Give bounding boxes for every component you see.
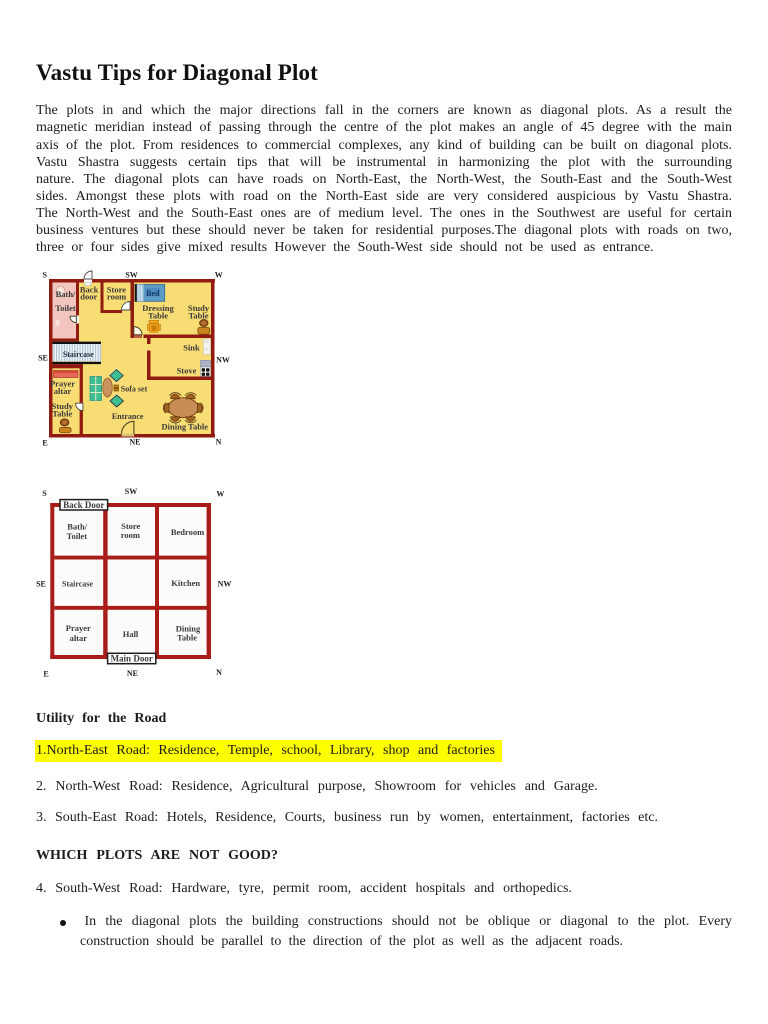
svg-text:Bath/: Bath/ <box>56 289 76 299</box>
svg-text:NE: NE <box>127 669 138 678</box>
svg-text:N: N <box>216 668 222 677</box>
svg-text:altar: altar <box>54 386 72 396</box>
svg-text:door: door <box>80 291 97 301</box>
svg-text:N: N <box>216 437 222 446</box>
svg-text:Bath/: Bath/ <box>67 522 87 532</box>
svg-text:Prayer: Prayer <box>66 623 91 633</box>
svg-text:W: W <box>215 271 223 280</box>
svg-text:S: S <box>42 489 47 498</box>
svg-text:SE: SE <box>38 353 48 362</box>
svg-text:E: E <box>42 438 47 447</box>
svg-text:Bed: Bed <box>146 289 160 298</box>
svg-text:Staircase: Staircase <box>63 350 94 359</box>
svg-text:Stove: Stove <box>177 366 197 376</box>
svg-text:room: room <box>107 292 126 302</box>
svg-text:Table: Table <box>188 310 208 320</box>
svg-text:NW: NW <box>216 355 230 364</box>
svg-text:Dining Table: Dining Table <box>162 422 209 432</box>
svg-text:Bedroom: Bedroom <box>171 527 204 537</box>
svg-text:Toilet: Toilet <box>55 303 76 313</box>
svg-text:NW: NW <box>218 579 232 588</box>
svg-text:room: room <box>121 530 140 540</box>
svg-text:Table: Table <box>177 632 197 642</box>
svg-text:SW: SW <box>125 270 137 279</box>
svg-text:Toilet: Toilet <box>67 531 88 541</box>
svg-text:Hall: Hall <box>123 629 139 639</box>
svg-text:S: S <box>42 271 47 280</box>
svg-text:W: W <box>216 490 224 499</box>
svg-text:Staircase: Staircase <box>62 579 93 588</box>
svg-text:SW: SW <box>125 487 137 496</box>
svg-text:Table: Table <box>52 409 72 419</box>
svg-text:Back Door: Back Door <box>63 500 104 510</box>
svg-text:Table: Table <box>148 310 168 320</box>
svg-text:altar: altar <box>70 633 88 643</box>
svg-text:Entrance: Entrance <box>112 412 144 421</box>
svg-text:Main Door: Main Door <box>111 654 153 664</box>
svg-text:SE: SE <box>36 579 46 588</box>
svg-text:Kitchen: Kitchen <box>171 578 200 588</box>
svg-text:Sofa set: Sofa set <box>121 385 148 394</box>
svg-text:NE: NE <box>129 438 140 447</box>
svg-text:E: E <box>43 669 48 678</box>
svg-text:Sink: Sink <box>183 343 200 353</box>
